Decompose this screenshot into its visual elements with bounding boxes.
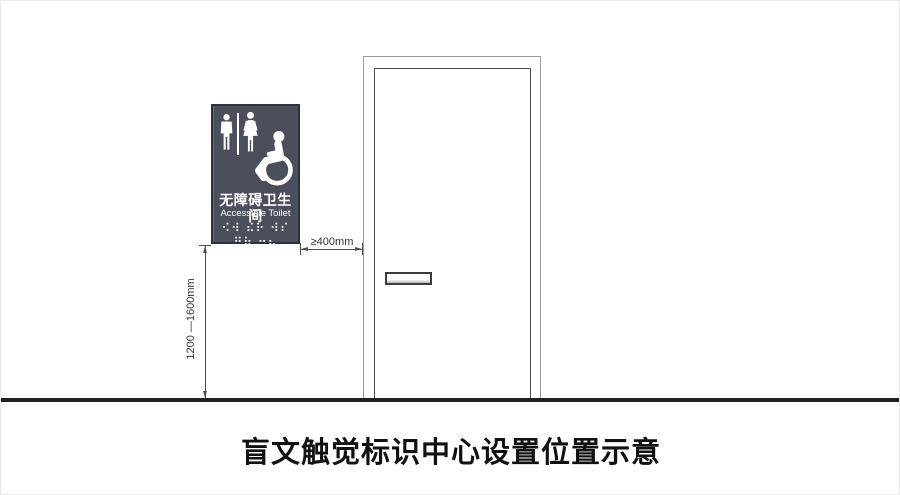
sign-braille-row: ⠪⠺ ⠮⠗ ⠺⠎ ⠛⠷ ⠒⠦ (213, 221, 298, 249)
male-figure-icon (218, 111, 235, 155)
diagram-canvas: 无障碍卫生间 Accessible Toilet ⠪⠺ ⠮⠗ ⠺⠎ ⠛⠷ ⠒⠦ … (0, 0, 900, 495)
dim-v-label: 1200 —1600mm (185, 278, 197, 359)
sign-title-en: Accessible Toilet (213, 208, 298, 220)
door-handle (385, 272, 432, 285)
dim-h-line (301, 249, 362, 250)
sign-divider-line (237, 113, 239, 155)
ground-line (1, 398, 900, 402)
door-panel (374, 68, 531, 400)
door-frame (363, 56, 541, 399)
wheelchair-icon (248, 127, 298, 191)
dim-h-label: ≥400mm (301, 236, 363, 248)
accessible-toilet-sign: 无障碍卫生间 Accessible Toilet ⠪⠺ ⠮⠗ ⠺⠎ ⠛⠷ ⠒⠦ (211, 104, 300, 244)
dim-v-line (205, 246, 206, 398)
dim-v-arrow-bottom (203, 391, 207, 398)
dim-v-arrow-top (203, 246, 207, 253)
diagram-caption: 盲文触觉标识中心设置位置示意 (1, 429, 900, 471)
